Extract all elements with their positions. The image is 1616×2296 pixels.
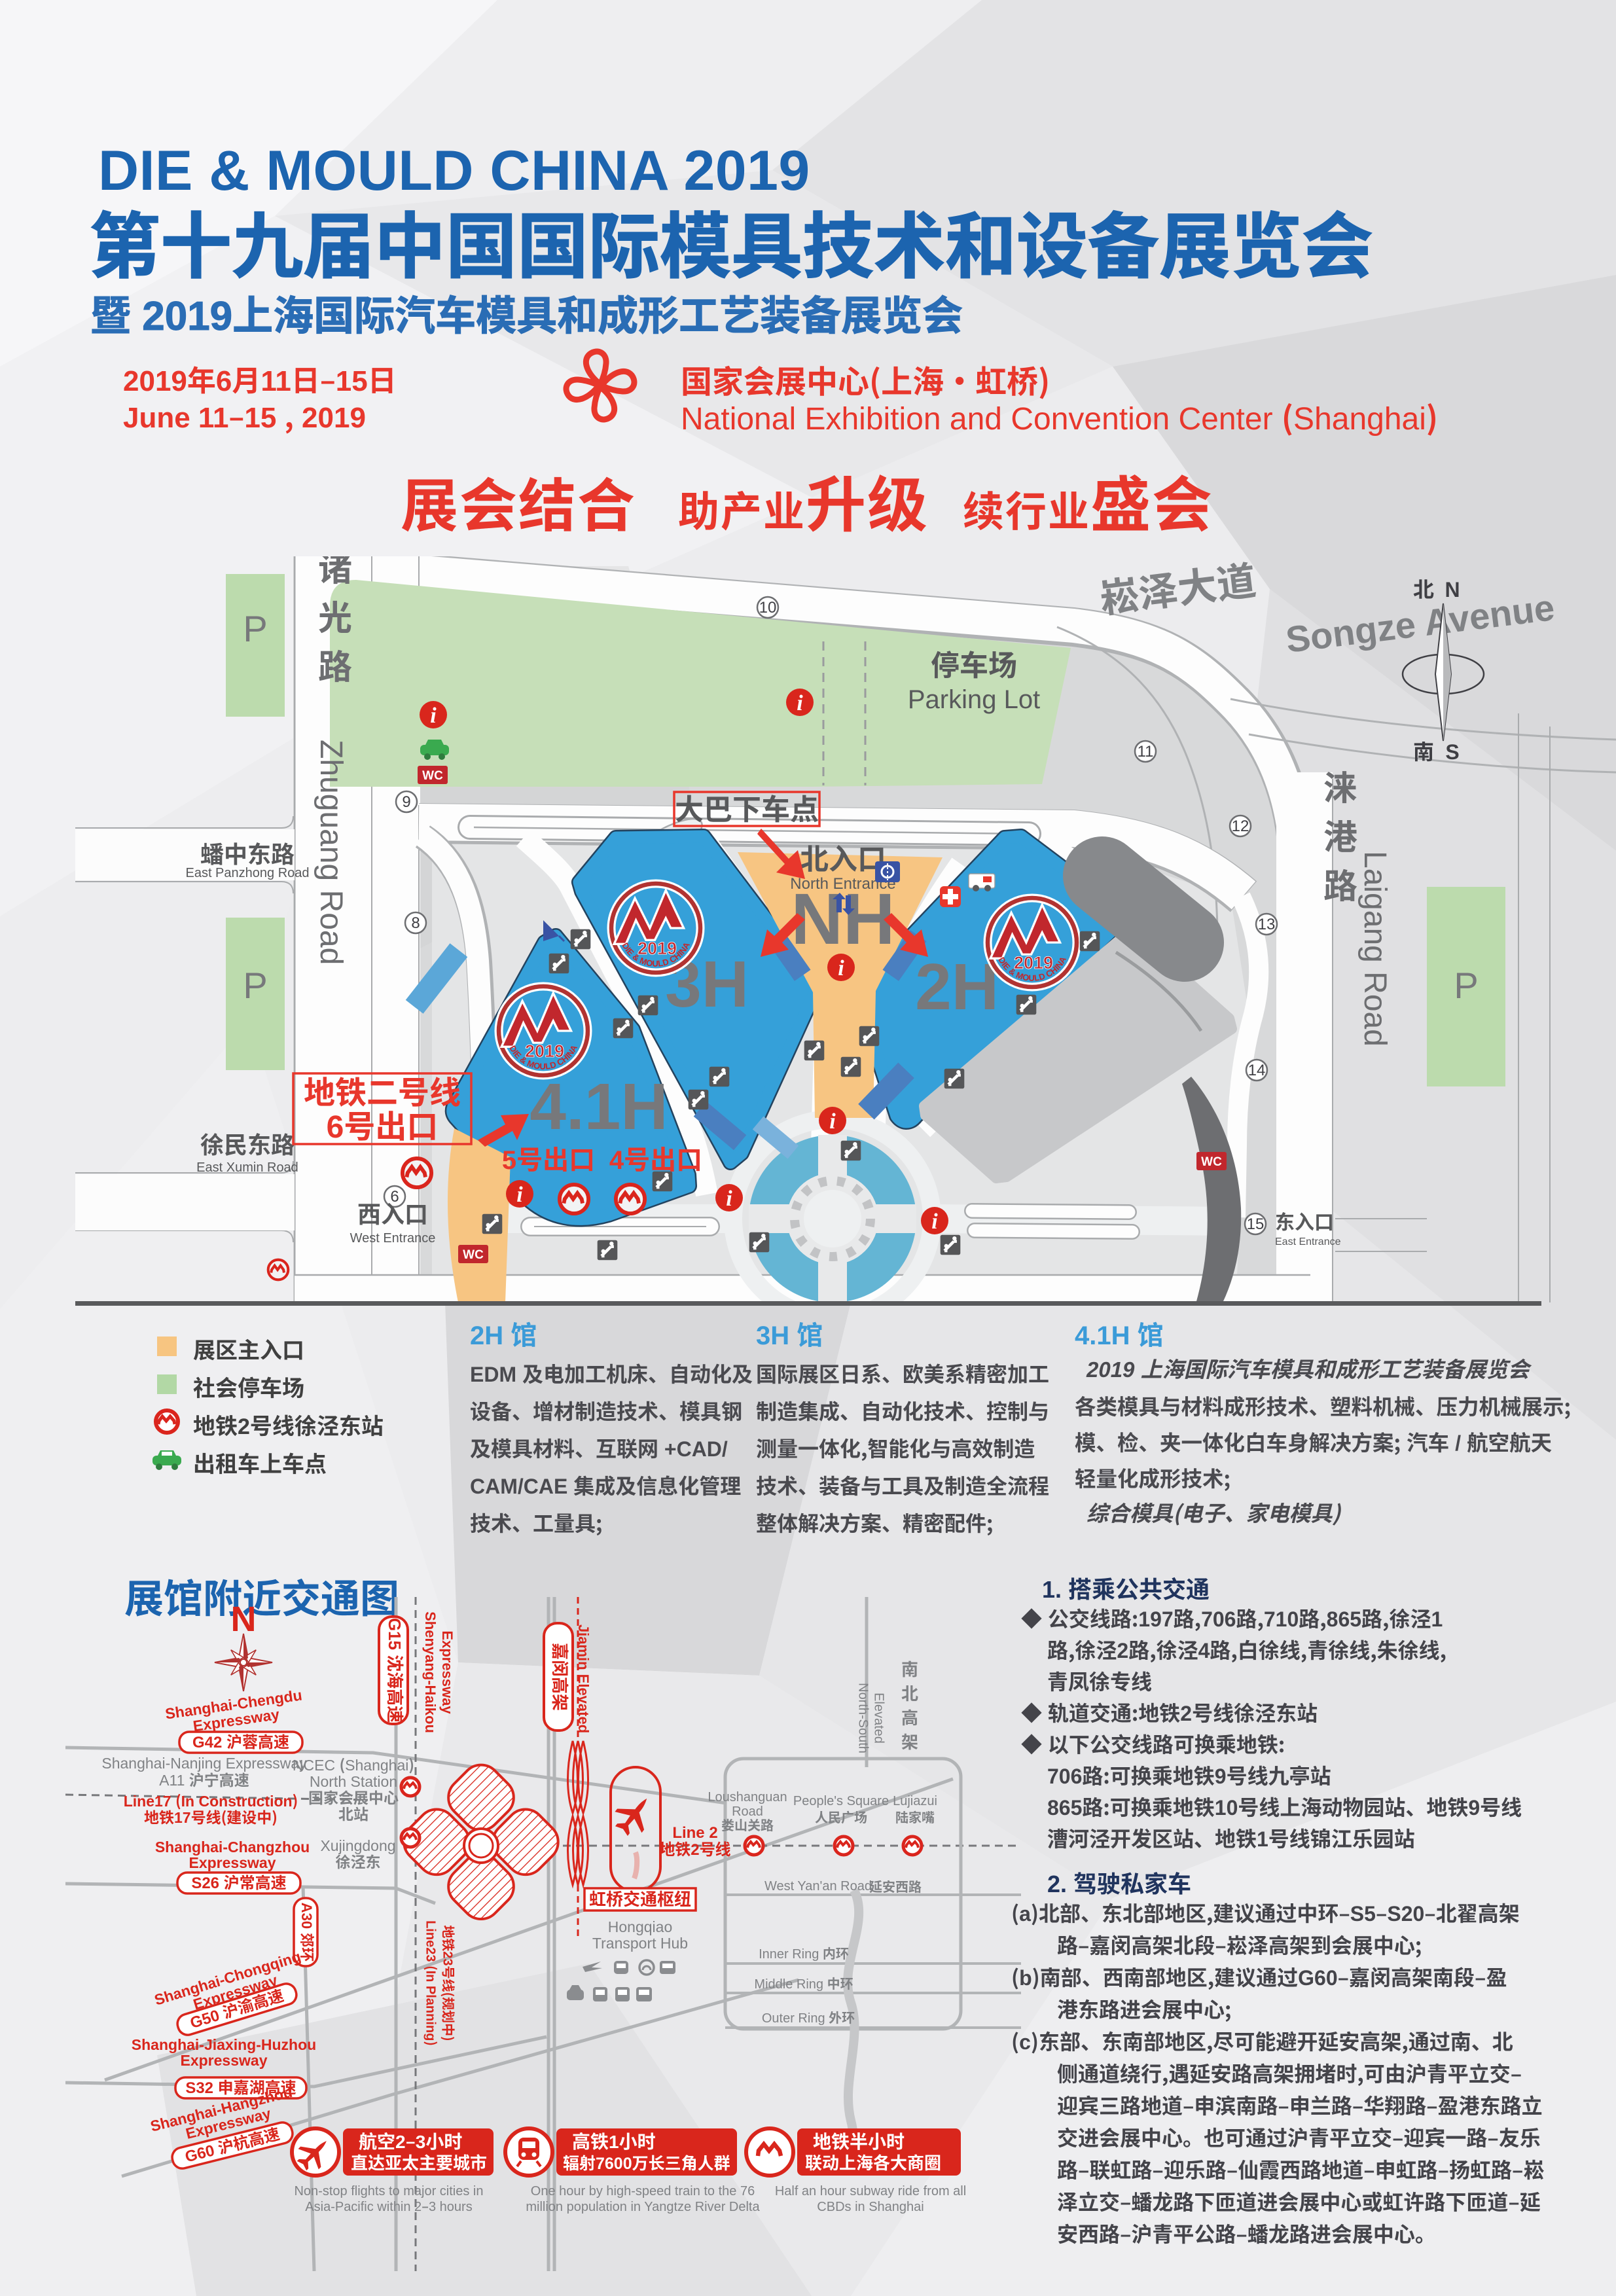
svg-text:4号出口: 4号出口 xyxy=(609,1139,702,1177)
svg-text:徐民东路: 徐民东路 xyxy=(200,1126,295,1160)
svg-text:S26 沪常高速: S26 沪常高速 xyxy=(191,1870,286,1893)
svg-text:WC: WC xyxy=(1201,1152,1222,1170)
svg-text:徐泾东: 徐泾东 xyxy=(336,1850,381,1872)
svg-text:S: S xyxy=(1445,736,1459,766)
svg-text:地铁17号线(建设中): 地铁17号线(建设中) xyxy=(144,1805,278,1827)
svg-text:CBDs in Shanghai: CBDs in Shanghai xyxy=(817,2196,924,2215)
svg-text:10: 10 xyxy=(759,594,777,617)
svg-text:辐射7600万长三角人群: 辐射7600万长三角人群 xyxy=(563,2151,730,2174)
svg-text:WC: WC xyxy=(422,766,443,783)
svg-text:N: N xyxy=(1445,573,1460,603)
svg-text:南: 南 xyxy=(1413,736,1434,766)
svg-text:G42 沪蓉高速: G42 沪蓉高速 xyxy=(192,1729,289,1752)
svg-text:人民广场: 人民广场 xyxy=(815,1807,867,1826)
svg-text:高铁1小时: 高铁1小时 xyxy=(572,2128,656,2154)
svg-text:P: P xyxy=(243,956,267,1009)
svg-text:West Entrance: West Entrance xyxy=(350,1227,436,1246)
svg-text:P: P xyxy=(243,600,267,653)
svg-text:A11 沪宁高速: A11 沪宁高速 xyxy=(159,1768,249,1790)
svg-text:12: 12 xyxy=(1232,813,1249,836)
svg-text:娄山关路: 娄山关路 xyxy=(721,1815,774,1834)
svg-text:崧泽大道: 崧泽大道 xyxy=(1096,556,1259,624)
svg-text:Parking Lot: Parking Lot xyxy=(908,678,1040,716)
svg-text:西入口: 西入口 xyxy=(357,1196,428,1230)
svg-text:East Entrance: East Entrance xyxy=(1275,1232,1341,1248)
svg-text:Asia-Pacific within 2–3 hours: Asia-Pacific within 2–3 hours xyxy=(305,2196,472,2215)
svg-text:北站: 北站 xyxy=(338,1802,368,1824)
svg-text:Elevated: Elevated xyxy=(871,1693,890,1744)
svg-text:G15 沈海高速: G15 沈海高速 xyxy=(384,1618,408,1723)
svg-text:A30 郊环: A30 郊环 xyxy=(297,1903,318,1962)
svg-text:13: 13 xyxy=(1258,911,1276,934)
svg-text:8: 8 xyxy=(411,910,420,933)
svg-text:15: 15 xyxy=(1247,1211,1265,1234)
svg-text:Transport Hub: Transport Hub xyxy=(592,1931,688,1953)
svg-text:虹桥交通枢纽: 虹桥交通枢纽 xyxy=(589,1886,691,1910)
svg-text:West Yan'an Road: West Yan'an Road xyxy=(764,1875,872,1894)
svg-text:Jiamin Elevated: Jiamin Elevated xyxy=(574,1624,595,1733)
svg-text:Expressway: Expressway xyxy=(189,1850,276,1873)
svg-text:陆家嘴: 陆家嘴 xyxy=(895,1807,935,1826)
svg-text:14: 14 xyxy=(1248,1057,1266,1080)
svg-text:Expressway: Expressway xyxy=(181,2048,268,2070)
svg-text:延安西路: 延安西路 xyxy=(869,1876,922,1895)
svg-text:嘉闵高架: 嘉闵高架 xyxy=(548,1643,573,1711)
svg-text:Laigang Road: Laigang Road xyxy=(1356,851,1401,1047)
svg-text:Expressway: Expressway xyxy=(438,1630,459,1714)
svg-text:East Xumin Road: East Xumin Road xyxy=(196,1157,298,1175)
svg-text:Line23 (In Planning): Line23 (In Planning) xyxy=(423,1920,442,2046)
svg-text:地铁2号线: 地铁2号线 xyxy=(659,1837,730,1859)
svg-text:联动上海各大商圈: 联动上海各大商圈 xyxy=(805,2150,941,2174)
svg-text:11: 11 xyxy=(1138,738,1154,761)
svg-text:East Panzhong Road: East Panzhong Road xyxy=(185,862,309,881)
svg-text:Outer Ring 外环: Outer Ring 外环 xyxy=(762,2007,855,2026)
svg-text:Lujiazui: Lujiazui xyxy=(893,1790,937,1809)
svg-text:6号出口: 6号出口 xyxy=(327,1101,439,1147)
svg-text:直达亚太主要城市: 直达亚太主要城市 xyxy=(351,2150,487,2174)
svg-text:东入口: 东入口 xyxy=(1275,1206,1334,1235)
svg-text:地铁23号线(规划中): 地铁23号线(规划中) xyxy=(440,1925,459,2041)
svg-text:Inner Ring 内环: Inner Ring 内环 xyxy=(759,1943,849,1962)
svg-text:南北高架: 南北高架 xyxy=(898,1657,922,1753)
svg-text:大巴下车点: 大巴下车点 xyxy=(675,786,819,828)
svg-text:9: 9 xyxy=(402,789,410,812)
svg-text:P: P xyxy=(1454,956,1478,1009)
svg-text:People's Square: People's Square xyxy=(793,1790,889,1809)
svg-text:WC: WC xyxy=(463,1245,484,1263)
svg-text:Middle Ring 中环: Middle Ring 中环 xyxy=(754,1973,853,1992)
svg-text:Zhuguang Road: Zhuguang Road xyxy=(312,740,357,965)
svg-text:北: 北 xyxy=(1413,573,1434,603)
svg-text:million population in Yangtze: million population in Yangtze River Delt… xyxy=(526,2196,760,2215)
svg-text:3H: 3H xyxy=(665,931,749,1026)
svg-text:诸光路: 诸光路 xyxy=(311,556,360,689)
svg-text:5号出口: 5号出口 xyxy=(502,1139,595,1177)
